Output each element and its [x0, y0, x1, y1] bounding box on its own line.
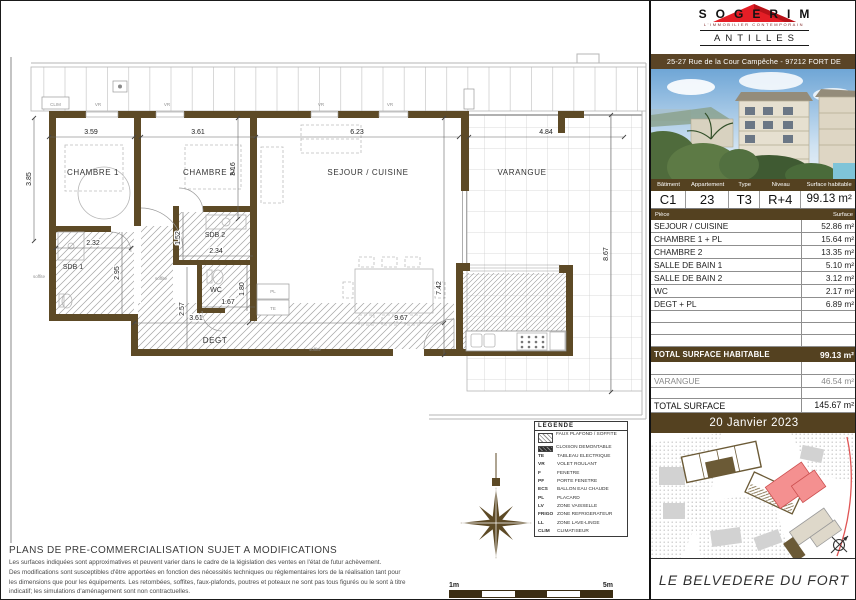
total-habitable-bar: TOTAL SURFACE HABITABLE 99.13 m²	[651, 347, 856, 362]
sidebar: SOGERIM L'IMMOBILIER CONTEMPORAIN ANTILL…	[649, 1, 856, 600]
svg-text:1.80: 1.80	[239, 282, 246, 296]
svg-text:3.61: 3.61	[191, 129, 205, 136]
legend-box: LEGENDE FAUX PLAFOND / SOFFITE CLOISON D…	[534, 421, 628, 537]
brand-region: ANTILLES	[700, 30, 809, 46]
table-row: SALLE DE BAIN 23.12 m²	[651, 272, 856, 285]
legend-item: FAUX PLAFOND / SOFFITE	[535, 431, 627, 444]
empty-row	[651, 388, 856, 399]
svg-text:6.23: 6.23	[350, 129, 364, 136]
hatch-swatch	[538, 433, 553, 443]
svg-text:2.57: 2.57	[179, 302, 186, 316]
varangue-row: VARANGUE 46.54 m²	[651, 375, 856, 388]
room-label-degt: DEGT	[203, 336, 228, 345]
legend-item: CLOISON DEMONTABLE	[535, 444, 627, 453]
legend-title: LEGENDE	[535, 422, 627, 431]
legend-item: CLIMCLIMATISEUR	[535, 528, 627, 536]
roof-band: CLIM	[31, 54, 646, 111]
info-table-values: C1 23 T3 R+4 99.13 m²	[651, 191, 856, 209]
site-map	[651, 433, 856, 559]
placard-label: PL	[270, 289, 276, 294]
disclaimer-line: les dimensions que pour les équipements.…	[9, 578, 444, 588]
empty-row	[651, 335, 856, 347]
svg-text:7.42: 7.42	[436, 281, 443, 295]
brand-tagline: L'IMMOBILIER CONTEMPORAIN	[651, 22, 856, 27]
legend-item: FRIGOZONE REFRIGERATEUR	[535, 511, 627, 519]
tableau-electrique-label: TE	[270, 306, 276, 311]
project-name: LE BELVEDERE DU FORT	[651, 559, 856, 600]
building-photo	[651, 69, 856, 179]
empty-row	[651, 311, 856, 323]
room-label-sdb1: SDB 1	[63, 264, 83, 271]
empty-row	[651, 323, 856, 335]
vr-label: VR	[164, 102, 171, 107]
date-bar: 20 Janvier 2023	[651, 413, 856, 433]
soffite-label: soffite	[33, 274, 45, 279]
legend-item: VRVOLET ROULANT	[535, 461, 627, 469]
table-row: SEJOUR / CUISINE52.86 m²	[651, 220, 856, 233]
scale-bar: 1m 5m	[449, 582, 613, 598]
svg-text:9.67: 9.67	[394, 315, 408, 322]
appartement-value: 23	[686, 191, 729, 208]
svg-text:8.67: 8.67	[603, 247, 610, 261]
compass-rose	[453, 451, 539, 567]
svg-text:3.85: 3.85	[26, 172, 33, 186]
room-label-sdb2: SDB 2	[205, 232, 225, 239]
disclaimer-title: PLANS DE PRE-COMMERCIALISATION SUJET A M…	[9, 545, 444, 556]
svg-text:4.84: 4.84	[539, 129, 553, 136]
svg-text:2.34: 2.34	[209, 248, 223, 255]
room-label-wc: WC	[210, 287, 222, 294]
soffite-label: soffite	[309, 347, 321, 352]
vr-label: VR	[95, 102, 102, 107]
scale-min-label: 1m	[449, 582, 459, 589]
table-row: WC2.17 m²	[651, 285, 856, 298]
address-bar: 25-27 Rue de la Cour Campêche - 97212 FO…	[651, 54, 856, 69]
room-label-sejour: SEJOUR / CUISINE	[327, 168, 408, 177]
empty-row	[651, 362, 856, 375]
table-row: CHAMBRE 1 + PL15.64 m²	[651, 233, 856, 246]
vr-label: VR	[387, 102, 394, 107]
svg-text:2.95: 2.95	[114, 266, 121, 280]
brand-logo: SOGERIM L'IMMOBILIER CONTEMPORAIN ANTILL…	[651, 1, 856, 54]
table-row: SALLE DE BAIN 15.10 m²	[651, 259, 856, 272]
vr-label: VR	[318, 102, 325, 107]
table-row: DEGT + PL6.89 m²	[651, 298, 856, 311]
rooms-table-header: Pièce Surface	[651, 209, 856, 220]
niveau-value: R+4	[760, 191, 801, 208]
closets: PL TE	[257, 284, 289, 315]
room-label-chambre1: CHAMBRE 1	[67, 168, 119, 177]
soffite-label: soffite	[155, 276, 167, 281]
legend-item: ECSBALLON EAU CHAUDE	[535, 486, 627, 494]
legend-item: PLPLACARD	[535, 495, 627, 503]
disclaimer: PLANS DE PRE-COMMERCIALISATION SUJET A M…	[9, 545, 444, 597]
solid-swatch	[538, 446, 553, 452]
room-label-chambre2: CHAMBRE 2	[183, 168, 235, 177]
legend-item: PFPORTE FENETRE	[535, 478, 627, 486]
clim-label: CLIM	[50, 102, 61, 107]
scale-bar-segments	[449, 590, 613, 598]
surface-value: 99.13 m²	[801, 191, 856, 208]
plan-sheet: CLIM	[0, 0, 856, 600]
type-value: T3	[729, 191, 760, 208]
brand-name: SOGERIM	[651, 7, 856, 21]
legend-item: LVZONE VAISSELLE	[535, 503, 627, 511]
disclaimer-line: Les surfaces indiquées sont approximativ…	[9, 558, 444, 568]
legend-item: FFENETRE	[535, 469, 627, 477]
legend-item: LLZONE LAVE-LINGE	[535, 520, 627, 528]
svg-text:3.59: 3.59	[84, 129, 98, 136]
legend-item: TETABLEAU ELECTRIQUE	[535, 453, 627, 461]
disclaimer-line: Des modifications sont susceptibles d'êt…	[9, 568, 444, 578]
svg-text:1.52: 1.52	[175, 231, 182, 245]
room-label-varangue: VARANGUE	[497, 168, 546, 177]
disclaimer-line: indicatif; les simulations d'aménagement…	[9, 587, 444, 597]
svg-text:1.67: 1.67	[221, 299, 235, 306]
total-surface-row: TOTAL SURFACE 145.67 m²	[651, 399, 856, 413]
batiment-value: C1	[651, 191, 686, 208]
svg-text:3.61: 3.61	[189, 315, 203, 322]
info-table-header: Bâtiment Appartement Type Niveau Surface…	[651, 179, 856, 191]
svg-text:2.32: 2.32	[86, 240, 100, 247]
scale-max-label: 5m	[603, 582, 613, 589]
table-row: CHAMBRE 213.35 m²	[651, 246, 856, 259]
